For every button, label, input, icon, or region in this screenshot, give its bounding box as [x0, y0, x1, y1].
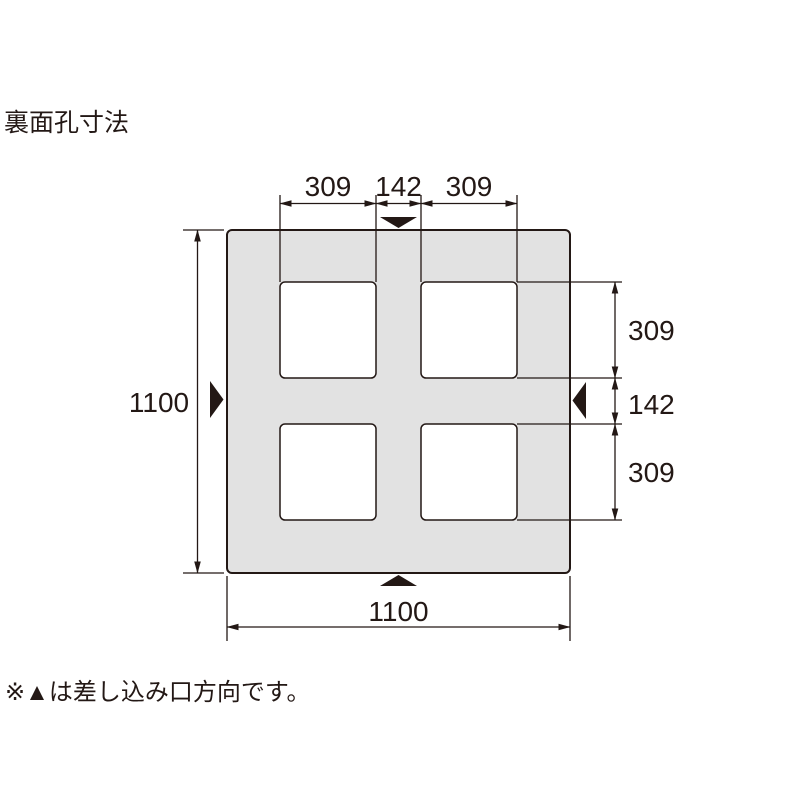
hole-top-left [280, 282, 376, 378]
dimension-label: 309 [305, 171, 352, 202]
dimension-label: 309 [628, 457, 675, 488]
hole-bottom-left [280, 424, 376, 520]
insertion-direction-note: ※▲は差し込み口方向です。 [5, 679, 310, 706]
insertion-direction-triangle-top-icon [380, 217, 417, 228]
insertion-direction-triangle-right-icon [573, 382, 587, 419]
dimension-label: 1100 [368, 596, 428, 627]
dimension-label: 142 [628, 389, 675, 420]
hole-top-right [421, 282, 517, 378]
page-title: 裏面孔寸法 [4, 109, 129, 137]
dimension-label: 1100 [129, 387, 189, 418]
left-dimension: 1100 [129, 230, 224, 573]
pallet-hole-dimension-drawing: 裏面孔寸法 309 142 309 1100 [0, 0, 800, 800]
dimension-label: 309 [628, 315, 675, 346]
insertion-direction-triangle-bottom-icon [380, 575, 417, 586]
dimension-label: 309 [446, 171, 493, 202]
dimension-label: 142 [375, 171, 422, 202]
insertion-direction-triangle-left-icon [210, 381, 224, 418]
hole-bottom-right [421, 424, 517, 520]
